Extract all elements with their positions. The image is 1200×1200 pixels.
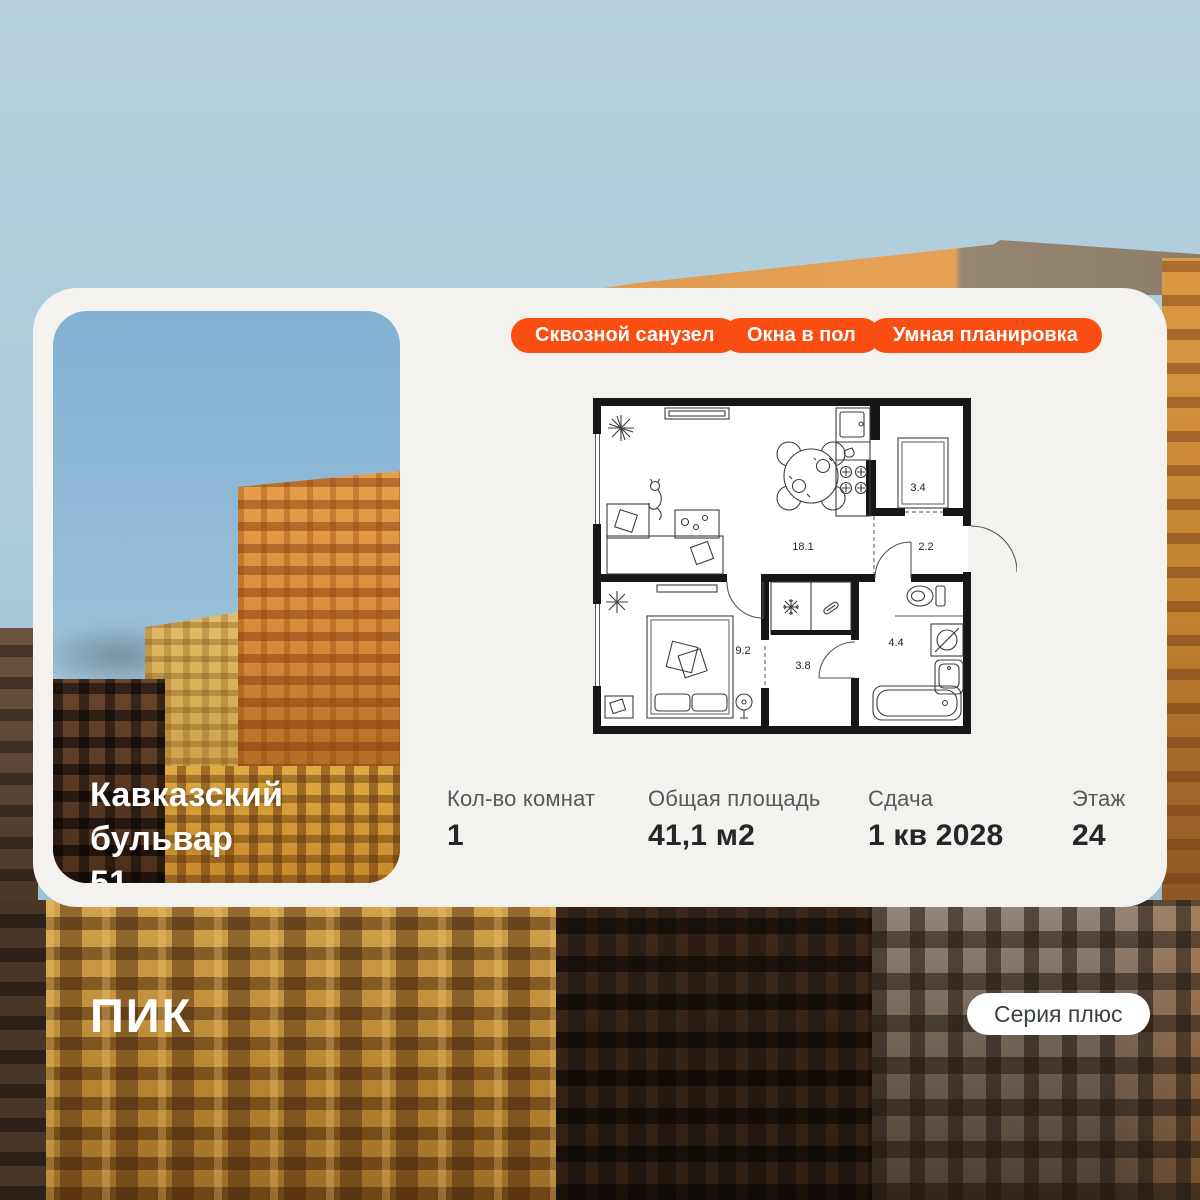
pik-logo: ПИК xyxy=(90,988,192,1043)
bg-building-bottom-1 xyxy=(0,900,48,1200)
area-wardrobe: 3.4 xyxy=(910,482,925,494)
project-title-line1: Кавказский бульвар xyxy=(90,773,380,861)
bg-building-right xyxy=(1162,258,1200,918)
plant-icon-2 xyxy=(606,591,628,613)
stat-floor: Этаж 24 xyxy=(1072,786,1125,853)
floor-plan: 18.1 3.4 2.2 9.2 3.8 4.4 xyxy=(593,398,1017,734)
stat-floor-value: 24 xyxy=(1072,819,1125,853)
area-bathroom: 4.4 xyxy=(888,637,903,649)
bg-building-bottom-3 xyxy=(556,900,874,1200)
stat-rooms-label: Кол-во комнат xyxy=(447,786,595,812)
fridge-icon xyxy=(783,599,799,615)
area-bedroom: 9.2 xyxy=(735,645,750,657)
feature-badge-floor-windows[interactable]: Окна в пол xyxy=(723,318,880,353)
stat-area-value: 41,1 м2 xyxy=(648,819,821,853)
project-photo[interactable]: Кавказский бульвар 51 xyxy=(53,311,400,883)
bg-building-bottom-4 xyxy=(872,900,1200,1200)
screenshot-root: Кавказский бульвар 51 Сквозной санузел О… xyxy=(0,0,1200,1200)
stat-area-label: Общая площадь xyxy=(648,786,821,812)
plan-floor xyxy=(596,401,968,731)
stat-rooms-value: 1 xyxy=(447,819,595,853)
stat-rooms: Кол-во комнат 1 xyxy=(447,786,595,853)
stat-floor-label: Этаж xyxy=(1072,786,1125,812)
project-title: Кавказский бульвар 51 xyxy=(90,773,380,883)
series-badge[interactable]: Серия плюс xyxy=(967,993,1150,1035)
area-hallway: 2.2 xyxy=(918,541,933,553)
project-title-line2: 51 xyxy=(90,861,380,883)
feature-badge-through-bathroom[interactable]: Сквозной санузел xyxy=(511,318,738,353)
listing-card[interactable]: Кавказский бульвар 51 Сквозной санузел О… xyxy=(33,288,1167,907)
stat-completion: Сдача 1 кв 2028 xyxy=(868,786,1003,853)
stat-completion-label: Сдача xyxy=(868,786,1003,812)
stat-area: Общая площадь 41,1 м2 xyxy=(648,786,821,853)
bg-building-bottom-2 xyxy=(46,900,558,1200)
stat-completion-value: 1 кв 2028 xyxy=(868,819,1003,853)
feature-badge-smart-layout[interactable]: Умная планировка xyxy=(869,318,1102,353)
area-living: 18.1 xyxy=(792,541,813,553)
area-corridor: 3.8 xyxy=(795,660,810,672)
